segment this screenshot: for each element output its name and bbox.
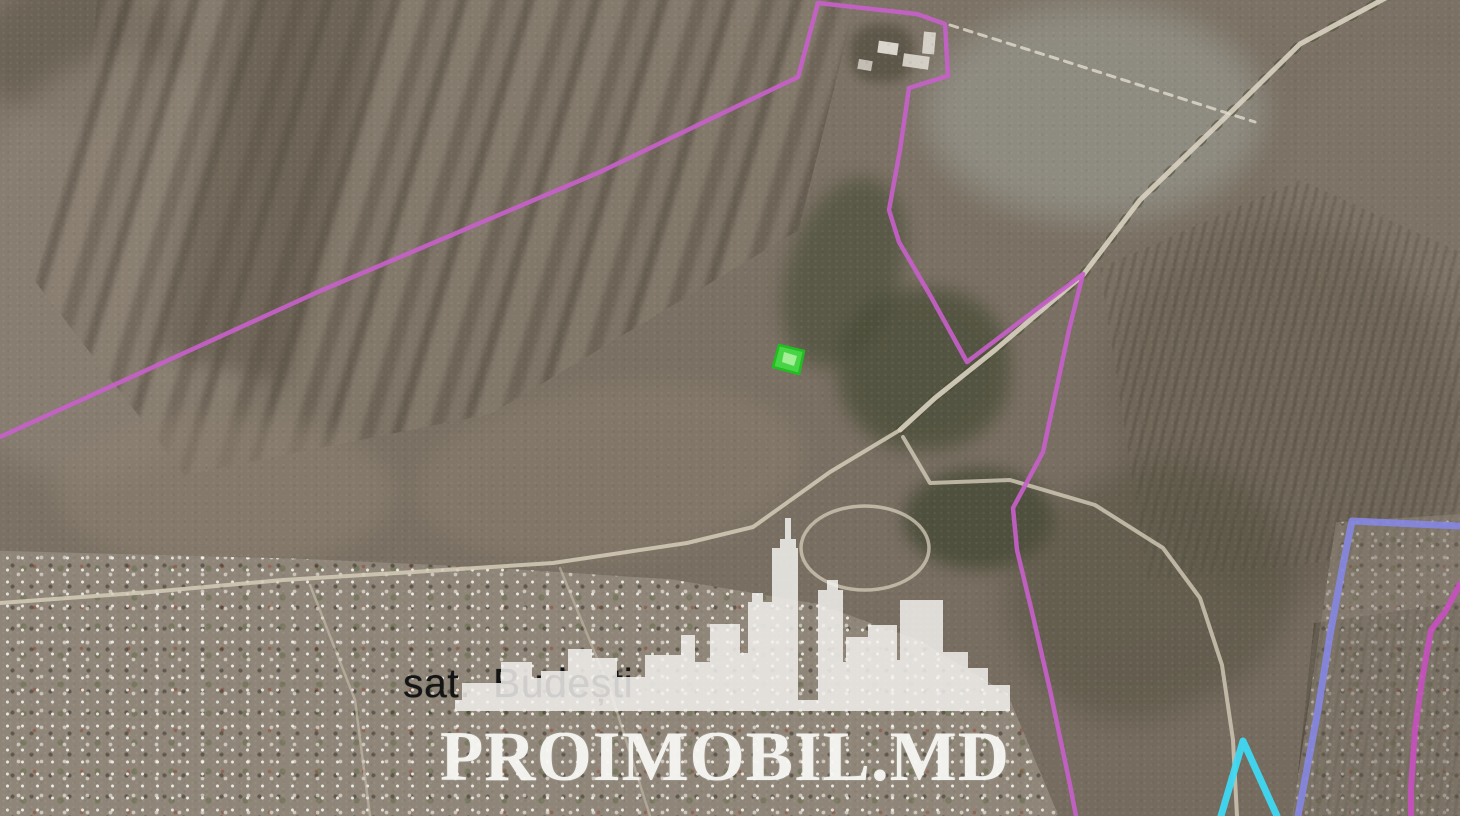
watermark-text: PROIMOBIL.MD [433,722,1017,793]
satellite-map-image[interactable]: sat. Budești PROIMOBIL.MD [0,0,1460,816]
city-skyline-icon [455,518,1010,711]
proimobil-skyline-watermark [0,0,1460,816]
